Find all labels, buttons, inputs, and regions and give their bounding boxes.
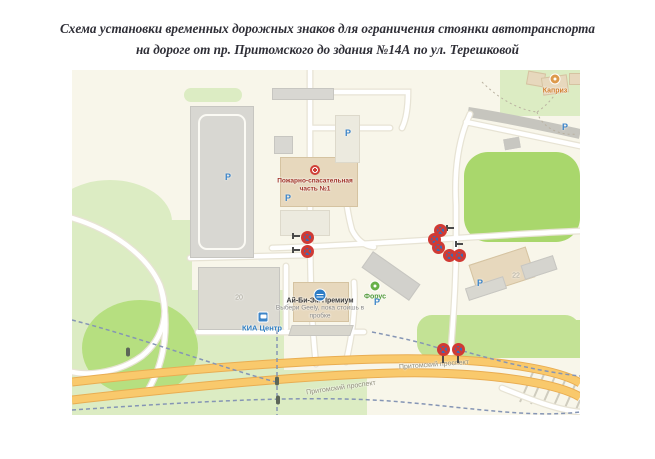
page-title: Схема установки временных дорожных знако… bbox=[0, 18, 655, 60]
sign-bracket bbox=[456, 243, 463, 245]
building-22-label: 22 bbox=[512, 273, 520, 280]
no-stopping-sign bbox=[437, 343, 450, 356]
fire-station-label[interactable]: Пожарно-спасательная часть №1 bbox=[277, 178, 353, 195]
stadium-building bbox=[190, 106, 254, 258]
parking-icon: Р bbox=[562, 122, 568, 132]
map-canvas[interactable]: Пожарно-спасательная часть №1 Каприз Фор… bbox=[72, 70, 580, 415]
traffic-light-icon bbox=[275, 377, 279, 386]
stadium-track-outline bbox=[198, 114, 246, 250]
map-base-layer bbox=[72, 70, 580, 415]
bus-stop-icon[interactable] bbox=[258, 312, 269, 323]
title-line-2: на дороге от пр. Притомского до здания №… bbox=[0, 39, 655, 60]
kapriz-building-3 bbox=[569, 73, 580, 85]
document-page: Схема установки временных дорожных знако… bbox=[0, 0, 655, 459]
no-stopping-sign bbox=[301, 231, 314, 244]
no-stopping-sign bbox=[452, 343, 465, 356]
parking-icon: Р bbox=[225, 172, 231, 182]
traffic-light-icon bbox=[276, 396, 280, 405]
parking-icon: Р bbox=[345, 128, 351, 138]
ibm-ad-line1: Выбери Geely, пока стоишь в bbox=[276, 304, 364, 312]
sign-bracket bbox=[293, 235, 300, 237]
parking-icon: Р bbox=[374, 297, 380, 307]
ibm-poi-icon[interactable] bbox=[314, 289, 327, 302]
kapriz-label[interactable]: Каприз bbox=[543, 88, 568, 95]
title-line-1: Схема установки временных дорожных знако… bbox=[0, 18, 655, 39]
building-20-label: 20 bbox=[235, 295, 243, 302]
kia-center-label[interactable]: КИА Центр bbox=[242, 324, 282, 333]
sign-post bbox=[457, 355, 459, 363]
traffic-light-icon bbox=[126, 348, 130, 357]
no-stopping-sign bbox=[453, 249, 466, 262]
building-top-bar bbox=[272, 88, 334, 100]
kapriz-poi-icon[interactable] bbox=[550, 74, 561, 85]
parking-icon: Р bbox=[477, 278, 483, 288]
parking-icon: Р bbox=[285, 193, 291, 203]
ibm-lower-strip bbox=[288, 325, 354, 336]
sign-bracket bbox=[293, 249, 300, 251]
sign-post bbox=[442, 355, 444, 363]
no-stopping-sign bbox=[301, 245, 314, 258]
sign-bracket bbox=[447, 227, 454, 229]
no-stopping-sign bbox=[432, 241, 445, 254]
building-small-square bbox=[274, 136, 293, 154]
fire-station-icon[interactable] bbox=[310, 165, 320, 175]
parking-lot-north bbox=[335, 115, 360, 163]
ibm-ad-line2: пробке bbox=[276, 313, 364, 321]
forus-poi-icon[interactable] bbox=[370, 281, 381, 292]
